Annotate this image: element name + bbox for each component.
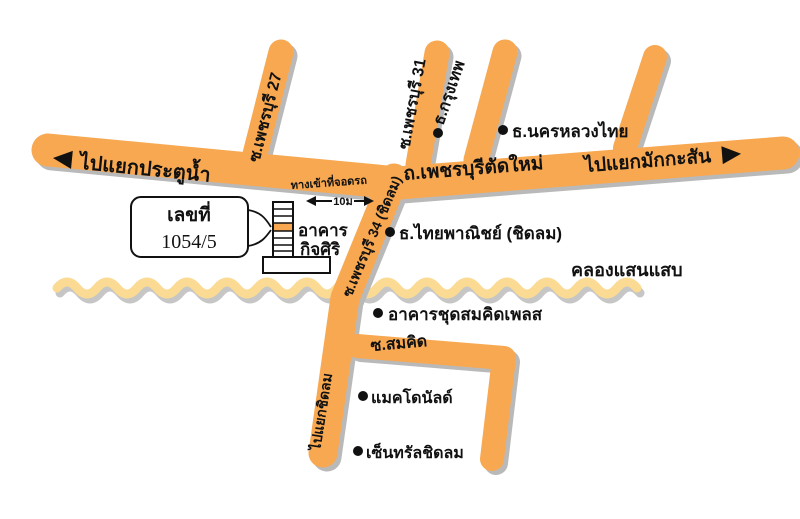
poi-label-nakornluang-bank: ธ.นครหลวงไทย [512,121,628,141]
building-name-line2: กิจศิริ [300,240,341,259]
map-canvas: เลขที่ 1054/5 อาคาร กิจศิริ ทางเข้าที่จอ… [0,0,800,519]
poi-dot-somkid-place [373,308,383,318]
road-unnamed-side-2 [625,57,655,148]
poi-label-mcdonalds: แมคโดนัลด์ [371,387,453,407]
callout-pointer [248,210,271,246]
map-stage: เลขที่ 1054/5 อาคาร กิจศิริ ทางเข้าที่จอ… [0,0,800,519]
building-base [263,257,330,273]
building-unit-highlight [274,223,292,231]
poi-label-central-chitlom: เซ็นทรัลชิดลม [366,441,464,462]
poi-dot-bangkok-bank [433,128,443,138]
building-name-line1: อาคาร [298,221,349,240]
road-unnamed-side-1 [476,52,505,160]
canal-label: คลองแสนแสบ [571,260,683,280]
poi-label-somkid-place: อาคารชุดสมคิดเพลส [388,305,543,325]
distance-label: 10ม [333,196,353,208]
poi-dot-nakornluang-bank [498,125,508,135]
poi-dot-mcdonalds [358,391,368,401]
poi-label-scb: ธ.ไทยพาณิชย์ (ชิดลม) [399,223,562,243]
callout-number: 1054/5 [161,231,217,253]
poi-dot-central-chitlom [353,446,363,456]
poi-dot-scb [385,227,395,237]
callout-label: เลขที่ [167,201,211,226]
